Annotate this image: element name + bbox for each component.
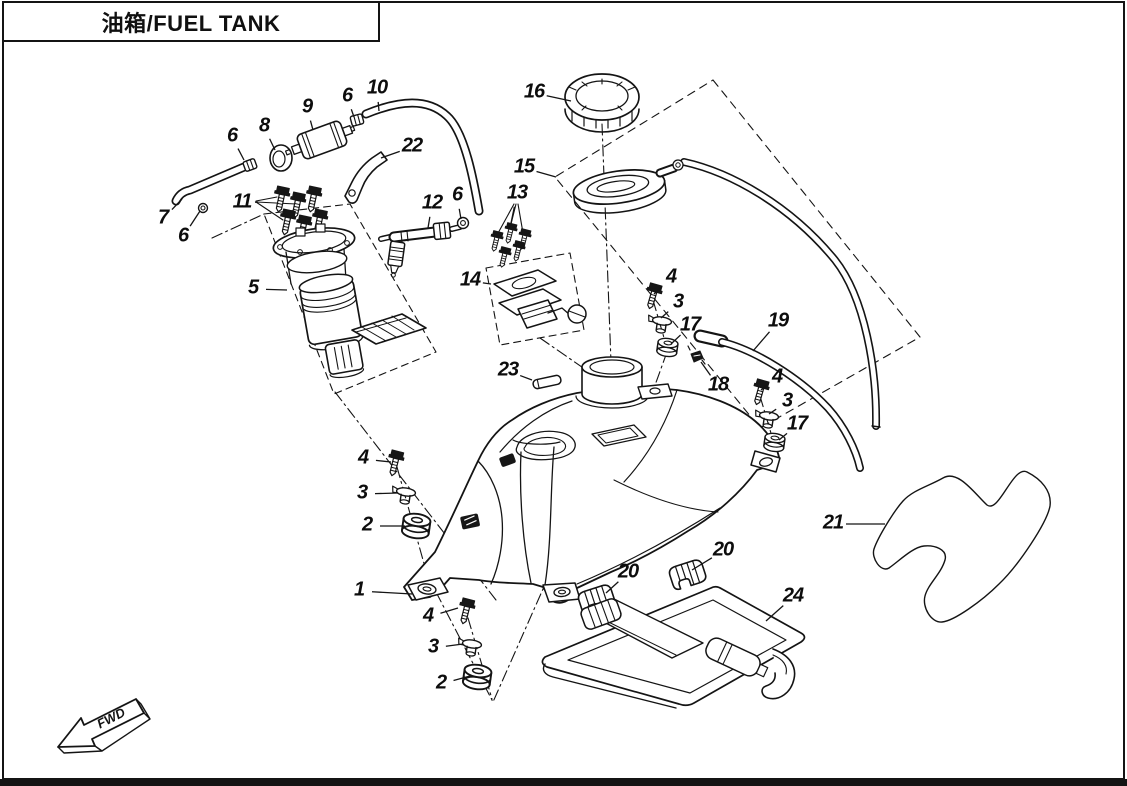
bracket bbox=[345, 152, 387, 203]
fuel-hose bbox=[176, 167, 244, 213]
fuel-outlet-fitting bbox=[381, 218, 469, 279]
vent-hose bbox=[684, 162, 880, 427]
pin bbox=[532, 375, 561, 390]
foam-pad bbox=[873, 471, 1050, 622]
hose-clamp bbox=[243, 158, 258, 172]
tank-mount-fasteners-lower-left bbox=[385, 450, 432, 540]
bottom-table-rule bbox=[0, 779, 1127, 786]
fuel-filter bbox=[282, 116, 359, 165]
bushing bbox=[270, 145, 292, 171]
fuel-level-sensor bbox=[494, 270, 586, 328]
fuel-tank-body bbox=[404, 357, 780, 603]
retainer-clip bbox=[688, 346, 705, 364]
exploded-diagram: FWD bbox=[0, 0, 1127, 786]
hose-clamp bbox=[350, 114, 364, 127]
rubber-damper bbox=[668, 558, 707, 590]
tank-mount-fasteners-upper-left bbox=[642, 282, 678, 357]
fuel-cap bbox=[565, 74, 639, 132]
page-title: 油箱/FUEL TANK bbox=[102, 6, 281, 38]
filler-ring bbox=[571, 160, 683, 218]
title-box: 油箱/FUEL TANK bbox=[2, 1, 380, 42]
sensor-screws bbox=[488, 204, 532, 269]
tank-mount-fasteners-lower-center bbox=[456, 598, 493, 691]
fwd-arrow: FWD bbox=[58, 699, 150, 753]
parts-catalog-page: FWD 161069862276111261315514431719184317… bbox=[0, 0, 1127, 786]
